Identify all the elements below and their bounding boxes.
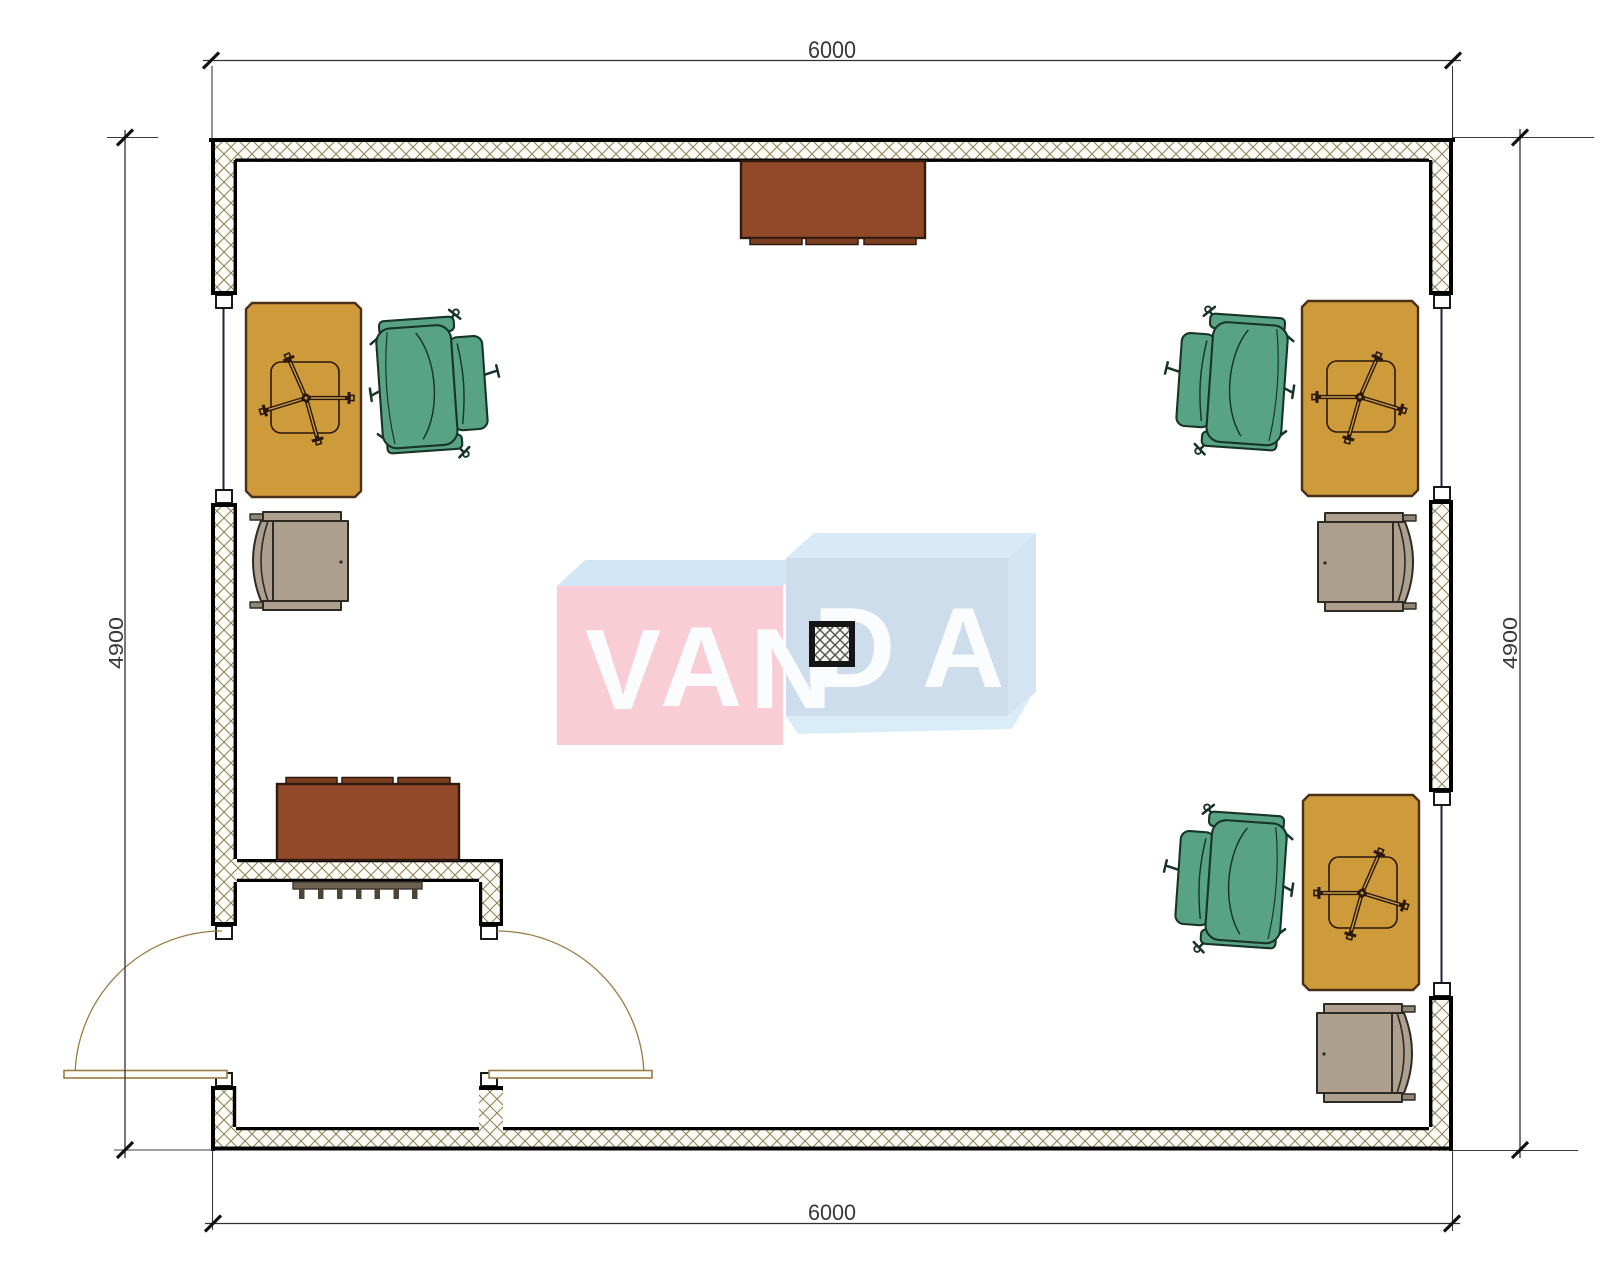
svg-text:A: A bbox=[922, 585, 1004, 712]
svg-text:A: A bbox=[660, 604, 742, 731]
svg-text:6000: 6000 bbox=[808, 37, 856, 64]
svg-text:V: V bbox=[585, 607, 661, 734]
svg-text:4900: 4900 bbox=[1500, 617, 1522, 669]
svg-text:6000: 6000 bbox=[808, 1200, 856, 1225]
svg-text:4900: 4900 bbox=[106, 617, 128, 669]
